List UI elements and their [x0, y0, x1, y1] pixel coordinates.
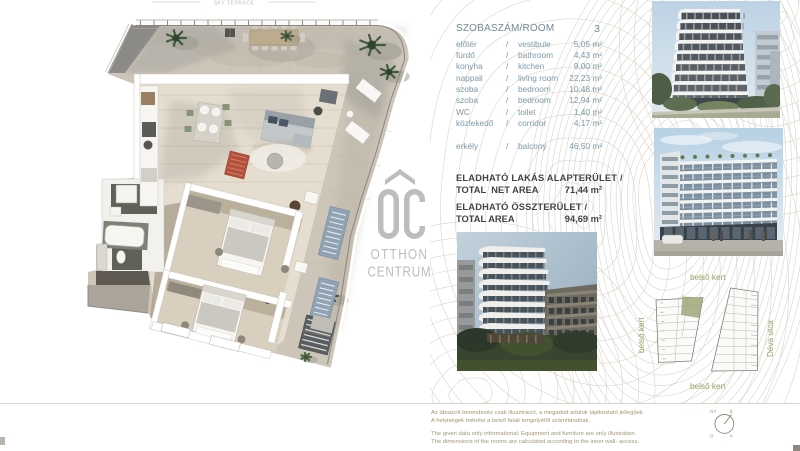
svg-text:NY: NY: [710, 409, 716, 414]
svg-text:D: D: [710, 434, 714, 439]
svg-text:OTTHON: OTTHON: [371, 246, 429, 263]
svg-text:K: K: [730, 434, 734, 439]
svg-text:belső kert: belső kert: [690, 382, 726, 391]
svg-text:belső kert: belső kert: [637, 317, 646, 353]
svg-text:SKY TERRACE: SKY TERRACE: [214, 1, 255, 7]
svg-text:CENTRUM: CENTRUM: [368, 263, 432, 280]
svg-text:Déva utca: Déva utca: [766, 320, 775, 357]
svg-text:É: É: [730, 408, 733, 414]
svg-text:belső kert: belső kert: [690, 273, 726, 282]
